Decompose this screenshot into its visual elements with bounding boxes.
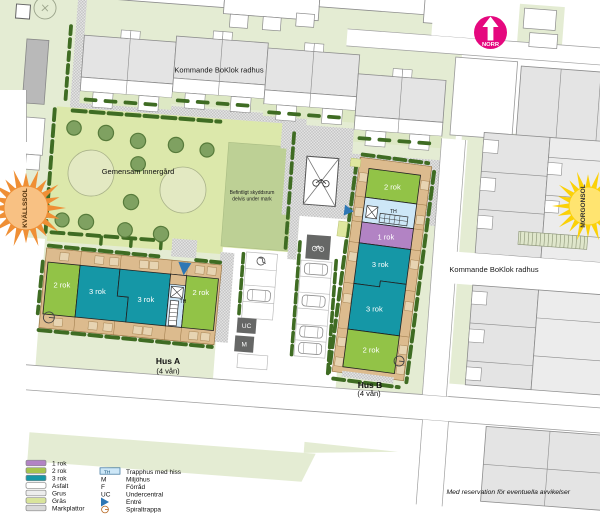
svg-text:Förråd: Förråd <box>126 483 146 491</box>
svg-text:(4 vån): (4 vån) <box>357 389 381 398</box>
svg-text:KVÄLLSSOL: KVÄLLSSOL <box>21 188 29 227</box>
svg-text:Hus A: Hus A <box>156 356 180 366</box>
svg-text:TH: TH <box>390 209 397 215</box>
svg-text:2 rok: 2 rok <box>52 468 67 475</box>
svg-text:Entré: Entré <box>126 499 142 506</box>
svg-text:2 rok: 2 rok <box>384 183 401 192</box>
svg-text:3 rok: 3 rok <box>372 260 389 269</box>
svg-text:Spiraltrappa: Spiraltrappa <box>126 507 161 514</box>
svg-text:UC: UC <box>242 323 252 330</box>
svg-text:3 rok: 3 rok <box>138 295 155 304</box>
svg-text:M: M <box>101 477 106 484</box>
svg-text:Trapphus med hiss: Trapphus med hiss <box>126 469 182 476</box>
svg-text:UC: UC <box>101 492 111 499</box>
svg-text:TH: TH <box>104 469 111 475</box>
svg-text:Med reservation för eventuella: Med reservation för eventuella avvikelse… <box>446 489 570 496</box>
svg-text:Gräs: Gräs <box>52 498 67 505</box>
svg-text:3 rok: 3 rok <box>89 287 106 296</box>
svg-text:MORGONSOL: MORGONSOL <box>580 184 587 227</box>
svg-text:Undercentral: Undercentral <box>126 492 164 499</box>
svg-text:Miljöhus: Miljöhus <box>126 477 151 484</box>
svg-text:NORR: NORR <box>482 42 500 48</box>
svg-text:Asfalt: Asfalt <box>52 483 68 490</box>
svg-text:TH: TH <box>180 299 187 305</box>
svg-text:Gemensam innergård: Gemensam innergård <box>102 167 175 176</box>
svg-text:(4 vån): (4 vån) <box>156 367 180 376</box>
svg-text:3 rok: 3 rok <box>52 475 67 482</box>
svg-text:Befintligt skyddsrum: Befintligt skyddsrum <box>230 190 275 196</box>
svg-text:3 rok: 3 rok <box>366 304 383 313</box>
svg-text:Grus: Grus <box>52 490 67 497</box>
svg-text:Markplattor: Markplattor <box>52 505 85 512</box>
svg-text:delvis under mark: delvis under mark <box>232 197 272 203</box>
svg-text:2 rok: 2 rok <box>192 288 209 297</box>
svg-text:2 rok: 2 rok <box>363 345 380 354</box>
svg-text:M: M <box>241 342 246 349</box>
svg-text:1 rok: 1 rok <box>52 460 67 467</box>
svg-text:F: F <box>101 484 105 491</box>
svg-text:2 rok: 2 rok <box>54 281 71 290</box>
svg-text:Kommande BoKlok radhus: Kommande BoKlok radhus <box>174 66 263 75</box>
svg-text:1 rok: 1 rok <box>378 232 395 241</box>
svg-text:Kommande BoKlok radhus: Kommande BoKlok radhus <box>449 265 538 274</box>
